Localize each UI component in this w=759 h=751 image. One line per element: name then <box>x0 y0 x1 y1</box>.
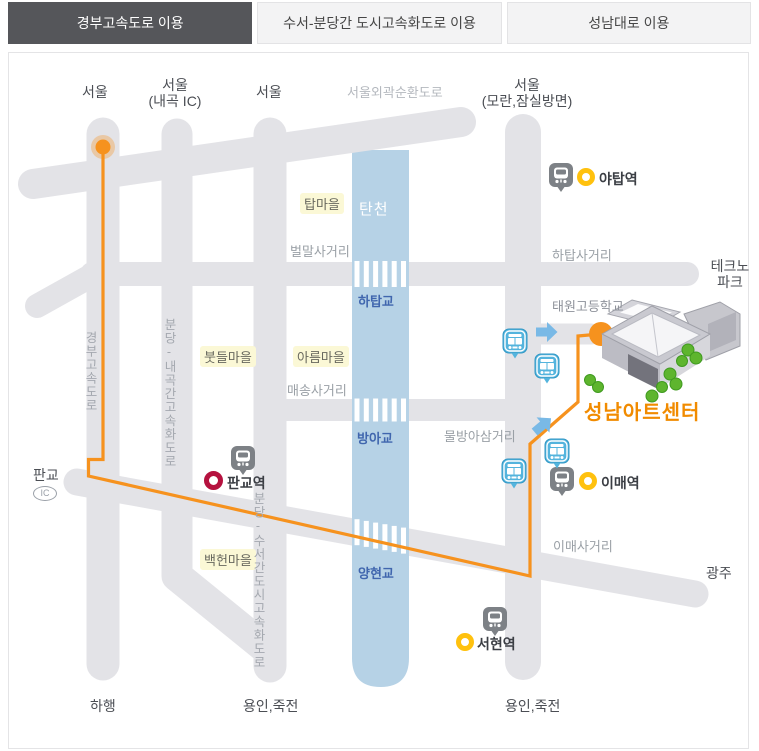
arts-center-building <box>585 300 741 402</box>
dest-pangyo: 판교 <box>33 467 59 483</box>
station-marker-pangyo <box>204 471 223 490</box>
dest-yongin-right: 용인,죽전 <box>505 698 560 714</box>
crossing-beolmal: 벌말사거리 <box>290 241 350 260</box>
subway-icon <box>548 162 574 194</box>
village-areum: 아름마을 <box>293 346 349 367</box>
bus-stop-icon <box>501 458 527 490</box>
bridge-yanghyeon: 양현교 <box>358 563 394 582</box>
highway-gyeongbu-label: 경부고속도로 <box>83 331 96 412</box>
dest-gwangju: 광주 <box>706 565 732 581</box>
crossing-imae: 이매사거리 <box>553 536 613 555</box>
station-label-imae: 이매역 <box>601 473 640 493</box>
crossing-hatap: 하탑사거리 <box>552 245 612 264</box>
ring-road-label: 서울외곽순환도로 <box>347 82 443 101</box>
village-tap: 탑마을 <box>300 193 344 214</box>
pangyo-ic-badge: IC <box>33 486 57 501</box>
station-label-yatap: 야탑역 <box>599 169 638 189</box>
bridge-hatap: 하탑교 <box>358 291 394 310</box>
bridge-banga: 방아교 <box>357 428 393 447</box>
tancheon-river <box>352 150 409 687</box>
highway-bundang-naegok-label: 분당-내곡간고속화도로 <box>162 318 175 468</box>
taewon-highschool-label: 태원고등학교 <box>552 296 624 315</box>
river-label: 탄천 <box>359 198 389 219</box>
dest-technopark: 테크노 파크 <box>705 258 755 290</box>
bus-stop-icon <box>534 353 560 385</box>
subway-icon <box>549 466 575 498</box>
village-baekheon: 백헌마을 <box>200 549 256 570</box>
dest-seoul-left: 서울 <box>82 84 108 100</box>
destination-label: 성남아트센터 <box>584 396 700 425</box>
station-marker-seohyeon <box>456 633 474 651</box>
dest-seoul-naegok: 서울 (내곡 IC) <box>135 77 215 109</box>
station-marker-imae <box>579 472 597 490</box>
dest-yongin-left: 용인,죽전 <box>243 698 298 714</box>
crossing-maesong: 매송사거리 <box>287 380 347 399</box>
bus-stop-icon <box>544 438 570 470</box>
crossing-mulbanga: 물방아삼거리 <box>444 426 516 445</box>
dest-seoul-moran: 서울 (모란,잠실방면) <box>467 77 587 109</box>
village-butdeul: 붓들마을 <box>200 346 256 367</box>
station-label-seohyeon: 서현역 <box>477 634 516 654</box>
dest-haheng: 하행 <box>90 698 116 714</box>
bus-stop-icon <box>502 328 528 360</box>
highway-bundang-suseo-label: 분당-수서간도시고속화도로 <box>251 492 264 669</box>
station-label-pangyo: 판교역 <box>227 473 266 493</box>
station-marker-yatap <box>577 168 595 186</box>
map-graphics <box>0 0 759 751</box>
dest-seoul-mid: 서울 <box>256 84 282 100</box>
